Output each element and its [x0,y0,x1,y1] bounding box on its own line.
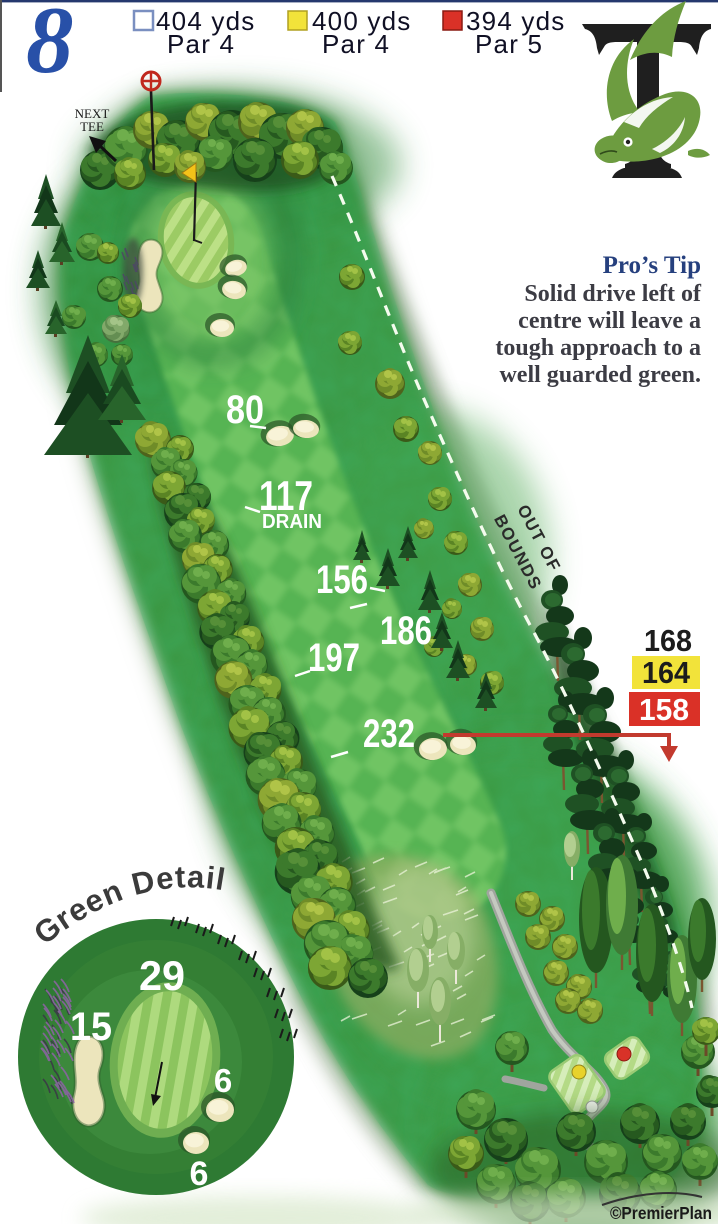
svg-text:Pro’s Tip: Pro’s Tip [603,252,701,279]
svg-text:Par 5: Par 5 [475,29,543,59]
svg-text:186: 186 [380,609,432,653]
svg-text:232: 232 [363,712,415,756]
svg-text:well guarded green.: well guarded green. [499,362,701,388]
svg-text:centre will leave a: centre will leave a [518,308,701,334]
svg-text:6: 6 [190,1155,209,1193]
svg-text:TEE: TEE [80,119,104,134]
svg-text:Par 4: Par 4 [167,29,235,59]
svg-text:©PremierPlan: ©PremierPlan [610,1203,712,1223]
svg-text:168: 168 [644,623,692,658]
svg-text:164: 164 [642,655,691,690]
svg-text:197: 197 [308,636,360,680]
svg-text:Solid drive left of: Solid drive left of [524,281,702,307]
svg-text:DRAIN: DRAIN [262,511,322,533]
svg-text:29: 29 [139,952,185,999]
svg-text:Par 4: Par 4 [322,29,390,59]
svg-text:tough approach to a: tough approach to a [495,335,701,361]
svg-text:158: 158 [639,692,689,727]
svg-text:8: 8 [26,0,74,93]
svg-text:15: 15 [70,1005,112,1049]
svg-text:6: 6 [214,1062,232,1099]
svg-text:156: 156 [316,558,368,602]
svg-text:80: 80 [226,388,264,432]
